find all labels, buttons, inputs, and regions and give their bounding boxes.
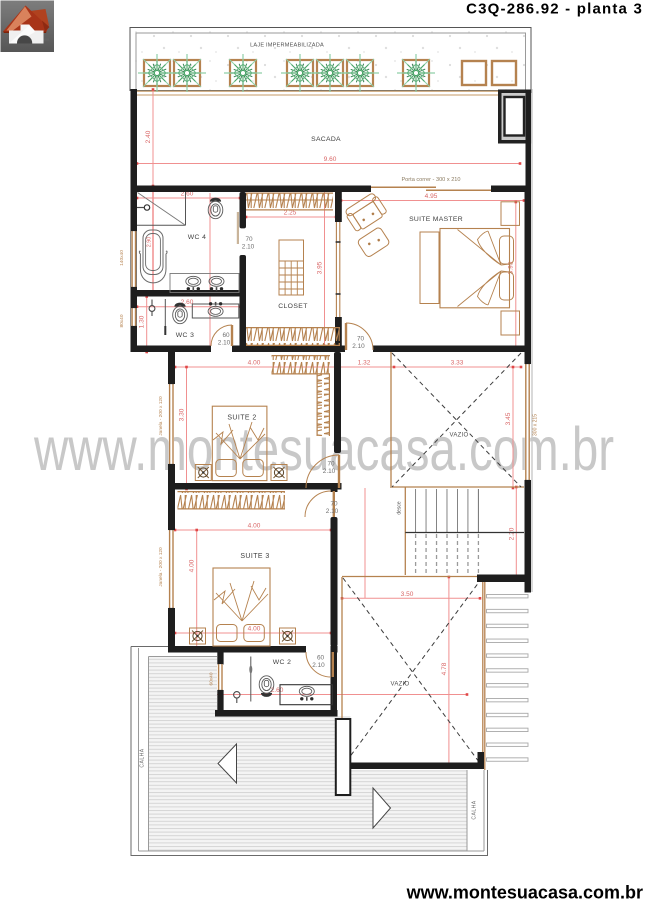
svg-text:3.45: 3.45 xyxy=(505,412,512,425)
svg-text:SUITE 3: SUITE 3 xyxy=(240,553,269,560)
svg-text:60: 60 xyxy=(317,655,325,662)
svg-text:www.montesuacasa.com.br: www.montesuacasa.com.br xyxy=(406,883,643,900)
svg-text:4.00: 4.00 xyxy=(248,360,261,367)
svg-text:1.30: 1.30 xyxy=(139,315,146,328)
svg-text:CALHA: CALHA xyxy=(472,800,478,819)
svg-text:2.20: 2.20 xyxy=(508,527,515,540)
svg-text:60: 60 xyxy=(222,332,230,339)
svg-text:2.60: 2.60 xyxy=(271,687,284,694)
svg-text:WC 3: WC 3 xyxy=(176,332,195,339)
svg-text:2.10: 2.10 xyxy=(242,244,255,251)
svg-text:2.10: 2.10 xyxy=(326,508,339,515)
svg-text:4.00: 4.00 xyxy=(189,559,196,572)
svg-text:300 x 215: 300 x 215 xyxy=(533,414,539,436)
svg-text:SUITE MASTER: SUITE MASTER xyxy=(409,216,463,223)
svg-text:4.78: 4.78 xyxy=(441,662,448,675)
svg-text:2.10: 2.10 xyxy=(323,468,336,475)
svg-text:80x40: 80x40 xyxy=(119,314,125,327)
svg-text:WC 2: WC 2 xyxy=(273,659,292,666)
svg-text:70: 70 xyxy=(357,336,365,343)
svg-text:2.90: 2.90 xyxy=(147,237,153,248)
svg-text:Porta correr - 300 x 210: Porta correr - 300 x 210 xyxy=(401,177,460,183)
svg-text:4.00: 4.00 xyxy=(248,523,261,530)
svg-text:CALHA: CALHA xyxy=(140,748,146,767)
svg-text:SUITE 2: SUITE 2 xyxy=(227,415,256,422)
svg-text:140x40: 140x40 xyxy=(119,250,125,266)
svg-text:CLOSET: CLOSET xyxy=(278,303,308,310)
svg-text:VAZIO: VAZIO xyxy=(449,433,468,439)
svg-text:2.25: 2.25 xyxy=(284,210,297,217)
svg-text:desce: desce xyxy=(396,501,402,515)
svg-text:3.95: 3.95 xyxy=(317,261,324,274)
svg-text:60x40: 60x40 xyxy=(209,672,215,685)
svg-text:2.10: 2.10 xyxy=(312,662,325,669)
svg-text:LAJE IMPERMEABILIZADA: LAJE IMPERMEABILIZADA xyxy=(250,43,324,49)
svg-text:70: 70 xyxy=(245,236,253,243)
svg-text:2.40: 2.40 xyxy=(145,130,152,143)
svg-text:4.95: 4.95 xyxy=(425,193,438,200)
svg-text:Janela - 200 x 120: Janela - 200 x 120 xyxy=(158,547,164,587)
svg-text:4.00: 4.00 xyxy=(248,626,261,633)
svg-text:2.10: 2.10 xyxy=(218,340,231,347)
svg-text:70: 70 xyxy=(327,461,335,468)
svg-text:2.10: 2.10 xyxy=(352,343,365,350)
svg-text:3.30: 3.30 xyxy=(179,408,186,421)
svg-text:C3Q-286.92 - planta 3: C3Q-286.92 - planta 3 xyxy=(466,1,643,18)
svg-text:1.32: 1.32 xyxy=(358,360,371,367)
svg-text:9.60: 9.60 xyxy=(324,156,337,163)
svg-text:SACADA: SACADA xyxy=(311,136,341,143)
svg-text:3.50: 3.50 xyxy=(401,591,414,598)
svg-text:3.33: 3.33 xyxy=(451,360,464,367)
svg-text:VAZIO: VAZIO xyxy=(390,682,409,688)
svg-text:WC 4: WC 4 xyxy=(188,234,207,241)
svg-text:70: 70 xyxy=(330,501,338,508)
svg-text:Janela - 200 x 120: Janela - 200 x 120 xyxy=(158,396,164,436)
